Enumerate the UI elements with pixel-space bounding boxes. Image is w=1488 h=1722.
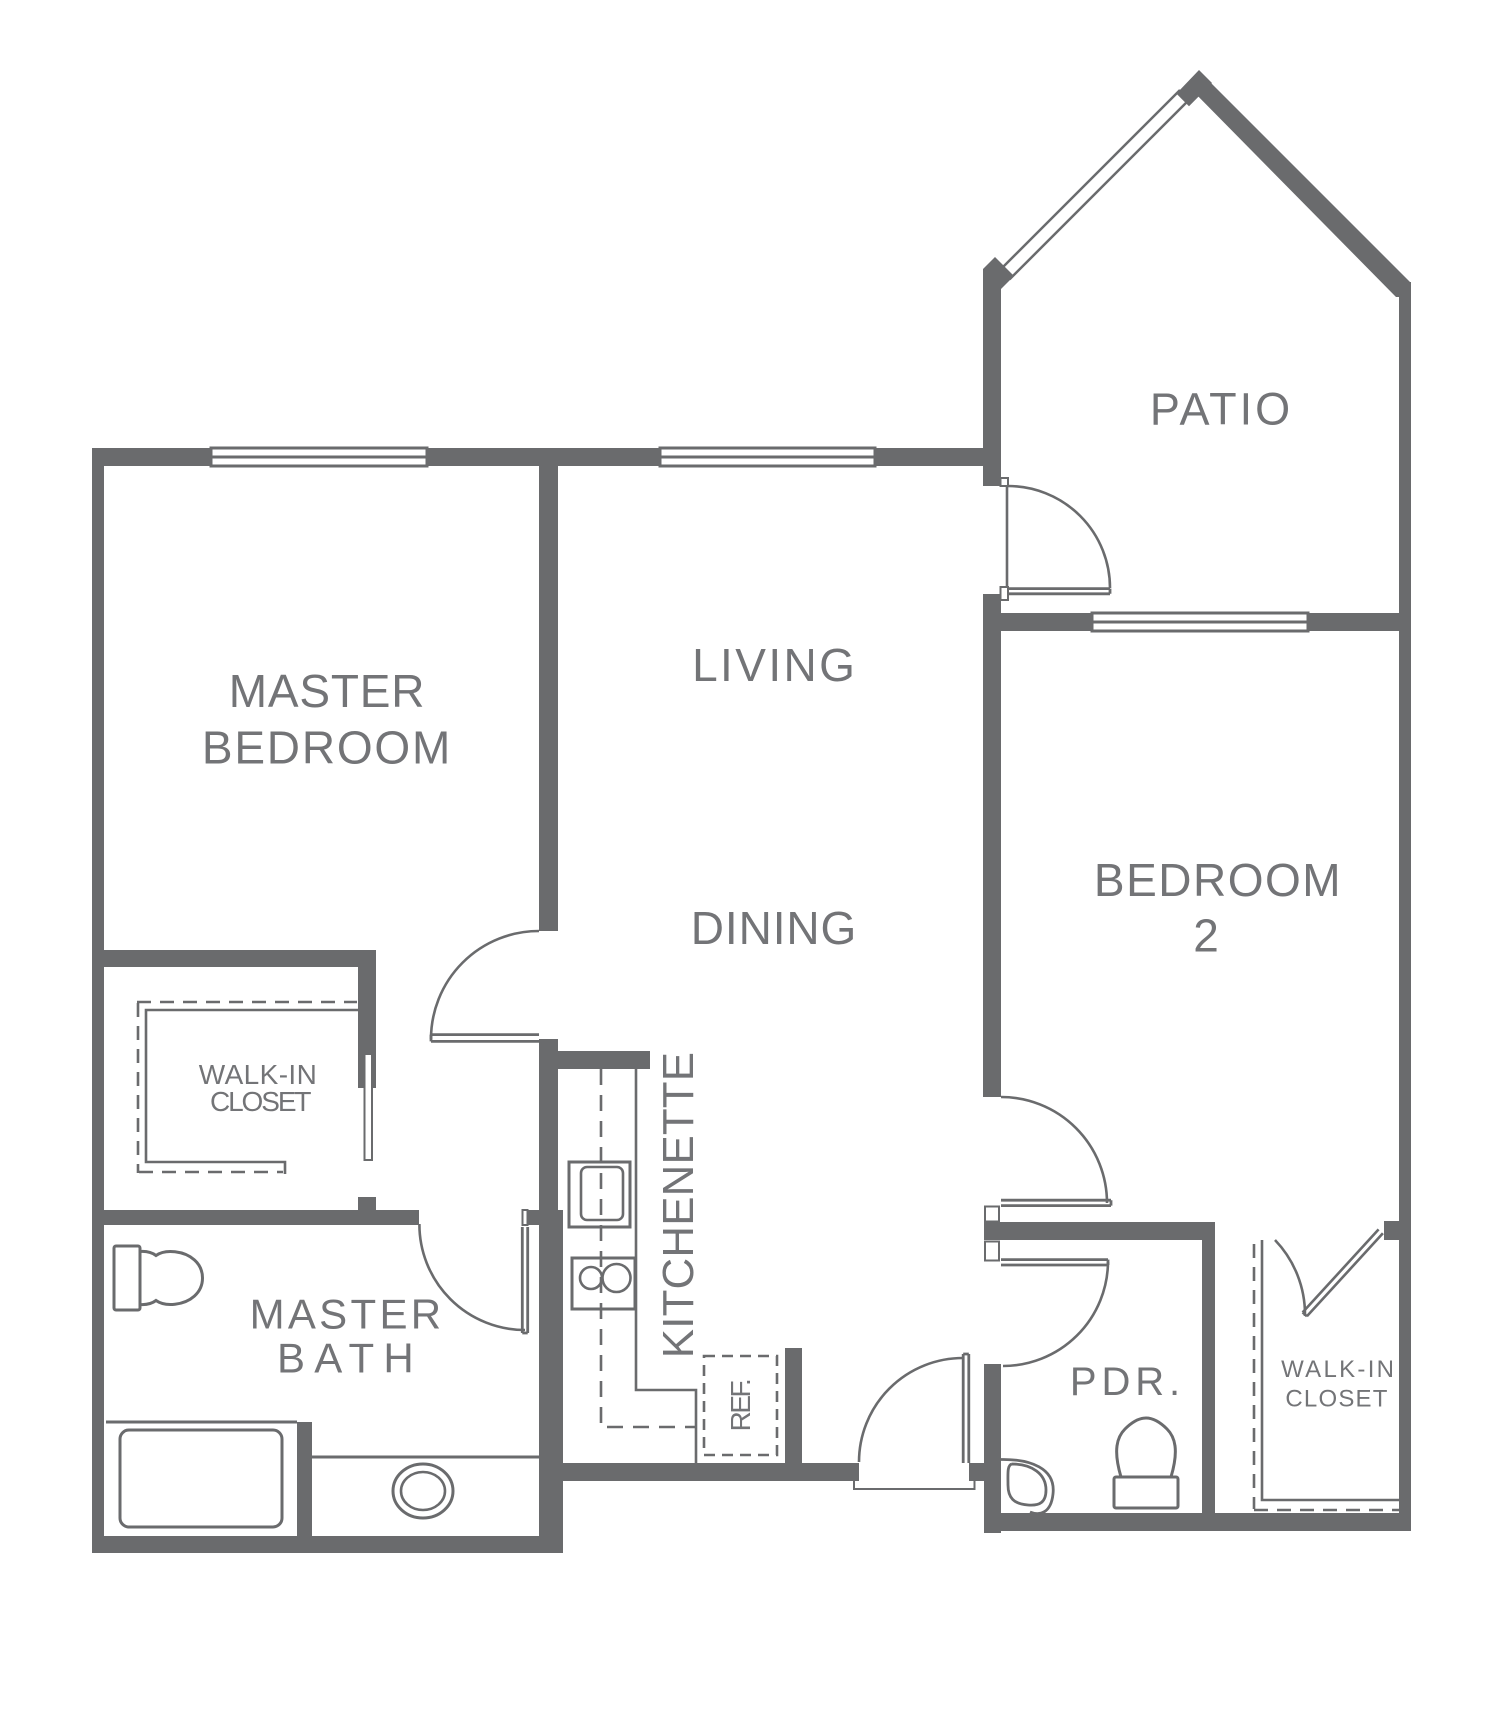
svg-text:LIVING: LIVING (692, 639, 857, 691)
svg-text:BEDROOM: BEDROOM (202, 721, 452, 773)
svg-text:CLOSET: CLOSET (1285, 1385, 1388, 1412)
svg-text:MASTER: MASTER (229, 665, 425, 717)
svg-text:BEDROOM: BEDROOM (1094, 854, 1342, 906)
svg-text:PDR.: PDR. (1070, 1360, 1185, 1404)
svg-text:KITCHENETTE: KITCHENETTE (654, 1052, 703, 1358)
svg-text:MASTER: MASTER (250, 1290, 445, 1337)
svg-text:CLOSET: CLOSET (210, 1086, 311, 1117)
svg-text:2: 2 (1193, 909, 1219, 961)
svg-text:WALK-IN: WALK-IN (1281, 1356, 1396, 1383)
svg-text:DINING: DINING (691, 902, 857, 954)
svg-text:BATH: BATH (277, 1334, 423, 1381)
svg-text:REF.: REF. (725, 1380, 756, 1431)
svg-text:PATIO: PATIO (1150, 384, 1293, 435)
